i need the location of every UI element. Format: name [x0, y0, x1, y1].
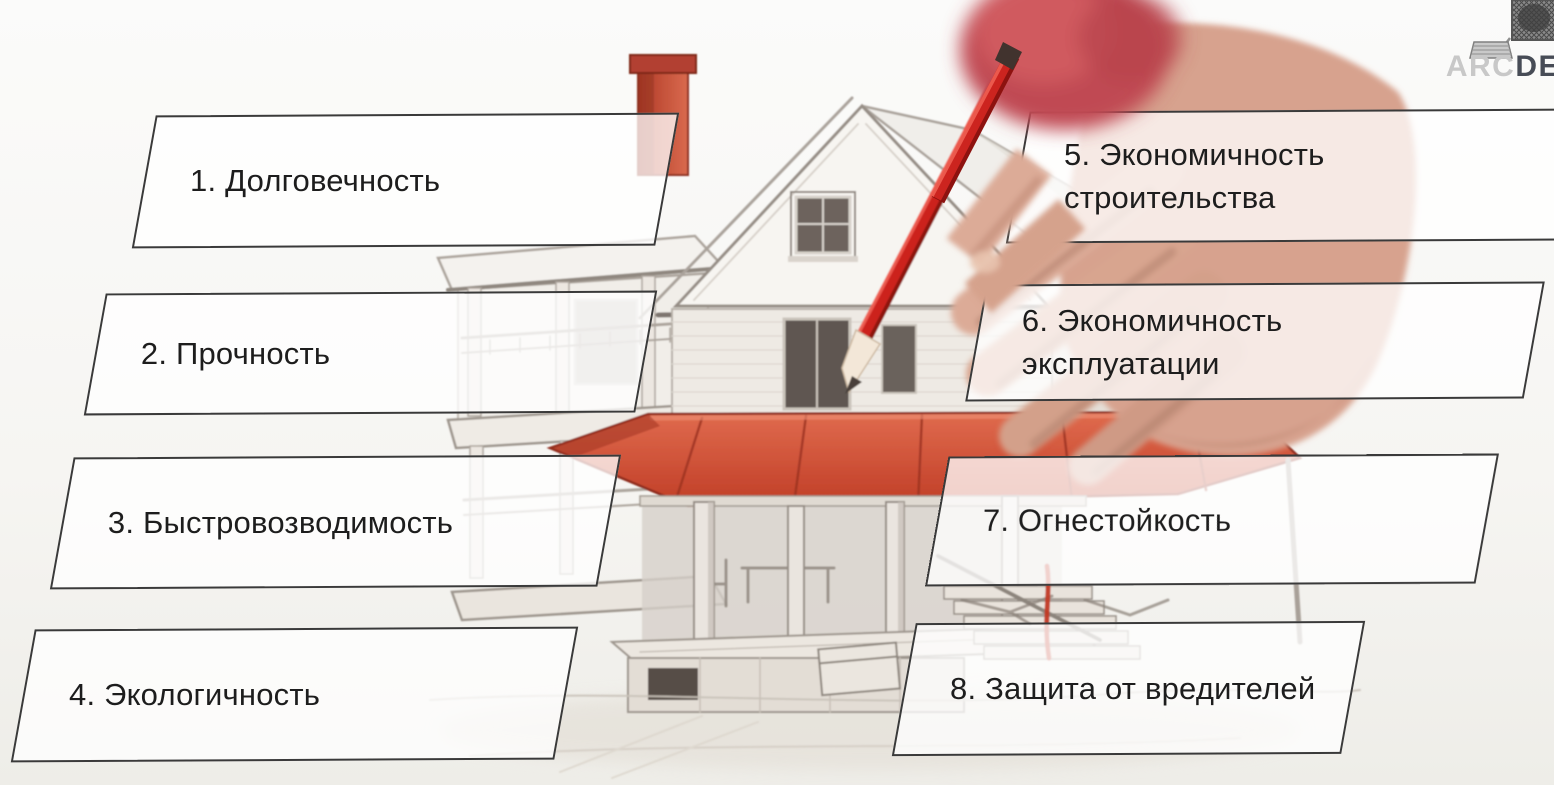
- requirement-label: 8. Защита от вредителей: [950, 667, 1351, 710]
- logo-text-light: ARC: [1446, 50, 1516, 83]
- slide-canvas: 1. Долговечность 2. Прочность 3. Быстров…: [0, 0, 1554, 785]
- hand: [974, 23, 1416, 472]
- requirement-box-6: 6. Экономичность эксплуатации: [965, 282, 1545, 402]
- requirement-label: 3. Быстровозводимость: [108, 500, 607, 543]
- requirement-box-1: 1. Долговечность: [132, 113, 679, 249]
- requirement-box-3: 3. Быстровозводимость: [50, 455, 621, 590]
- requirement-box-5: 5. Экономичность строительства: [1006, 109, 1554, 244]
- requirement-label-line2: эксплуатации: [1022, 341, 1532, 384]
- requirement-label: 5. Экономичность: [1064, 133, 1554, 176]
- logo-text: ARCDE: [1446, 50, 1554, 84]
- requirement-box-7: 7. Огнестойкость: [925, 454, 1499, 587]
- requirement-box-8: 8. Защита от вредителей: [892, 621, 1365, 756]
- logo-text-dark: DE: [1515, 50, 1554, 83]
- requirement-label: 1. Долговечность: [190, 159, 665, 202]
- requirement-label: 4. Экологичность: [69, 673, 564, 716]
- requirement-label-line2: строительства: [1064, 176, 1554, 219]
- requirement-box-2: 2. Прочность: [84, 291, 657, 416]
- requirement-label: 2. Прочность: [141, 331, 644, 374]
- crate: [818, 643, 900, 696]
- requirement-label: 6. Экономичность: [1022, 298, 1532, 341]
- logo: ARCDE: [1434, 0, 1554, 96]
- requirement-label: 7. Огнестойкость: [983, 498, 1485, 541]
- requirement-box-4: 4. Экологичность: [11, 627, 578, 763]
